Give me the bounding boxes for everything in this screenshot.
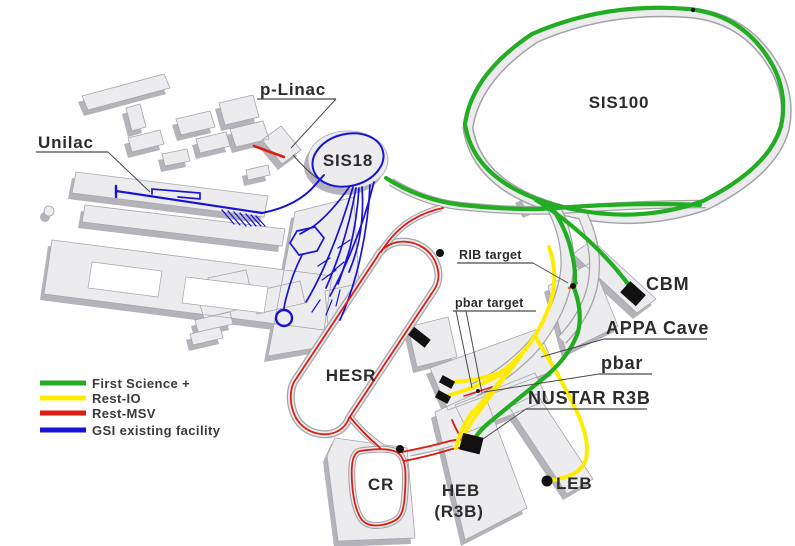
- label-cbm: CBM: [646, 274, 689, 294]
- leb-dot: [542, 476, 553, 487]
- legend-label-rest-msv: Rest-MSV: [92, 406, 156, 421]
- sis100-tick: [691, 8, 695, 12]
- label-heb: HEB: [442, 481, 480, 500]
- label-sis18: SIS18: [323, 151, 373, 170]
- label-appa-cave: APPA Cave: [606, 318, 709, 338]
- label-heb-r3b: (R3B): [434, 502, 483, 521]
- legend-label-rest-io: Rest-IO: [92, 391, 141, 406]
- label-nustar-r3b: NUSTAR R3B: [528, 388, 651, 408]
- label-pbar: pbar: [601, 353, 643, 373]
- label-p-linac: p-Linac: [260, 80, 326, 99]
- legend-label-first-science: First Science +: [92, 376, 190, 391]
- label-hesr: HESR: [326, 366, 376, 385]
- hesr-dot: [436, 249, 444, 257]
- rib-target-dot: [570, 283, 576, 289]
- label-cr: CR: [368, 475, 394, 494]
- label-leb: LEB: [556, 474, 592, 493]
- label-sis100: SIS100: [589, 93, 650, 112]
- legend: First Science + Rest-IO Rest-MSV GSI exi…: [40, 376, 221, 438]
- diagram-canvas: Unilac p-Linac SIS18 SIS100 CBM RIB targ…: [0, 0, 795, 546]
- label-pbar-target: pbar target: [455, 296, 524, 310]
- label-unilac: Unilac: [38, 133, 94, 152]
- pbar-target-dot: [476, 389, 480, 393]
- cr-dot: [396, 445, 404, 453]
- legend-label-gsi-existing: GSI existing facility: [92, 423, 221, 438]
- fair-facility-diagram: Unilac p-Linac SIS18 SIS100 CBM RIB targ…: [0, 0, 795, 546]
- label-rib-target: RIB target: [459, 248, 522, 262]
